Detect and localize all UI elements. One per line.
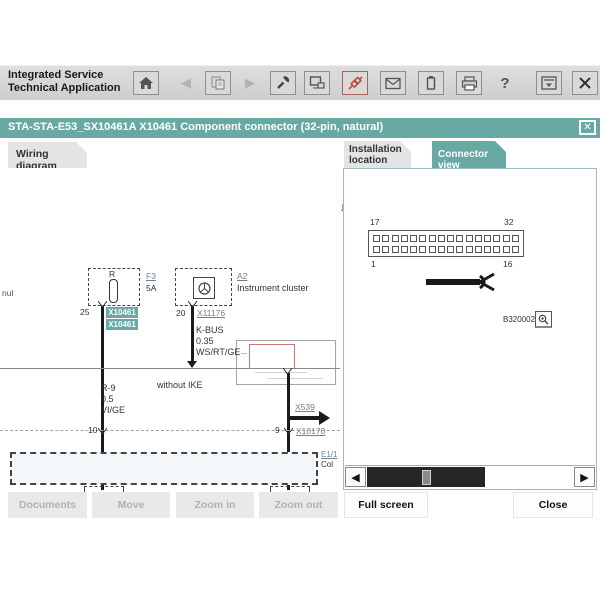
pin-square	[493, 246, 500, 253]
fuse-symbol-icon	[109, 279, 118, 303]
forward-button[interactable]: ▶	[240, 71, 260, 95]
print-button[interactable]	[456, 71, 482, 95]
vehicle-info-row: VIN: CAR: X'/E53/OFF-ROAD VEHICLE/X5 3.0…	[0, 100, 600, 117]
monitor-button[interactable]	[304, 71, 330, 95]
pin-square	[484, 246, 491, 253]
app-title-line1: Integrated Service	[8, 69, 120, 82]
minimize-window-button[interactable]	[536, 71, 562, 95]
pin-square	[438, 235, 445, 242]
pin-fork-icon	[284, 428, 293, 434]
overview-viewport-rect[interactable]	[249, 344, 295, 369]
dialog-close-button[interactable]: ✕	[579, 120, 596, 135]
link-x539[interactable]: X539	[295, 402, 315, 412]
close-button[interactable]: Close	[513, 492, 593, 518]
pin-square	[401, 246, 408, 253]
pin-square	[419, 235, 426, 242]
tab-installation-line1: Installation	[349, 144, 411, 155]
diagram-overview-navigator[interactable]	[236, 340, 336, 385]
fuse-label: R	[109, 269, 115, 279]
move-button[interactable]: Move	[92, 492, 170, 518]
connector-tag-group: X10461 X10461	[106, 307, 138, 331]
pin-number-9: 9	[275, 425, 280, 435]
pin-square	[456, 235, 463, 242]
home-button[interactable]	[133, 71, 159, 95]
pin-square	[392, 246, 399, 253]
app-title-line2: Technical Application	[8, 82, 120, 95]
pin-row-bottom	[373, 246, 519, 253]
full-screen-button[interactable]: Full screen	[344, 492, 428, 518]
pin-square	[466, 246, 473, 253]
connector-button-active[interactable]	[342, 71, 368, 95]
pin-square	[373, 246, 380, 253]
branch-arrow-right-icon	[319, 411, 330, 425]
note-without-ike: without IKE	[157, 380, 203, 390]
wire-size: 0.35	[196, 336, 214, 346]
vehicle-document-button[interactable]	[205, 71, 231, 95]
tab-installation-line2: location	[349, 155, 411, 166]
back-icon: ◀	[181, 75, 191, 91]
link-bottom-ref[interactable]: E1/1	[321, 450, 337, 459]
wire-color: WS/RT/GE	[196, 347, 240, 357]
mail-button[interactable]	[380, 71, 406, 95]
wiring-diagram-panel: nul R F3 5A 25 X10461 X10461 A2 Instrume…	[0, 168, 341, 490]
pin-square	[382, 235, 389, 242]
dialog-title: STA-STA-E53_SX10461A X10461 Component co…	[8, 121, 383, 133]
pin-square	[410, 246, 417, 253]
scroll-right-icon: ▶	[580, 471, 588, 484]
link-x11176[interactable]: X11176	[197, 308, 225, 318]
pin-label-top-left: 17	[370, 217, 379, 227]
pin-square	[373, 235, 380, 242]
edge-truncated-text: nul	[2, 288, 13, 298]
wire-arrowhead-down-icon	[187, 361, 197, 368]
close-app-button[interactable]	[572, 71, 598, 95]
close-icon	[578, 76, 592, 90]
connector-tag-x10461[interactable]: X10461	[106, 307, 138, 318]
pin-square	[401, 235, 408, 242]
pin-square	[429, 235, 436, 242]
dialog-title-bar: STA-STA-E53_SX10461A X10461 Component co…	[0, 118, 600, 138]
left-wire-size: 0.5	[101, 394, 114, 404]
scroll-right-button[interactable]: ▶	[574, 467, 595, 487]
pin-square	[512, 235, 519, 242]
forward-icon: ▶	[245, 75, 255, 91]
overview-line	[255, 372, 307, 373]
overview-line	[267, 378, 323, 379]
scrollbar-thumb[interactable]	[367, 467, 485, 487]
pin-label-bottom-right: 16	[503, 259, 512, 269]
overview-line	[241, 353, 247, 354]
connector-icon	[347, 75, 364, 91]
zoom-in-button[interactable]: Zoom in	[176, 492, 254, 518]
scrollbar-grip	[422, 470, 431, 485]
vehicle-document-icon	[210, 75, 226, 91]
pin-square	[475, 235, 482, 242]
instrument-cluster-icon	[193, 277, 215, 299]
photo-reference: B320002	[503, 315, 535, 324]
connector-tag-x10461[interactable]: X10461	[106, 319, 138, 330]
link-f3[interactable]: F3	[146, 271, 156, 281]
battery-button[interactable]	[418, 71, 444, 95]
pin-square	[456, 246, 463, 253]
pin-number-10: 10	[88, 425, 97, 435]
scroll-left-button[interactable]: ◀	[345, 467, 366, 487]
wire-kbus	[191, 306, 194, 362]
pin-label-bottom-left: 1	[371, 259, 376, 269]
scroll-left-icon: ◀	[351, 471, 359, 484]
pin-square	[503, 235, 510, 242]
workshop-button[interactable]	[270, 71, 296, 95]
pin-row-top	[373, 235, 519, 242]
left-wire-color: VI/GE	[101, 405, 125, 415]
documents-button[interactable]: Documents	[8, 492, 87, 518]
pin-label-top-right: 32	[504, 217, 513, 227]
connector-side-view	[426, 271, 501, 293]
pin-fork-icon	[98, 301, 107, 307]
branch-arrow-shaft	[289, 416, 319, 420]
pin-square	[512, 246, 519, 253]
pin-square	[429, 246, 436, 253]
cluster-name: Instrument cluster	[237, 283, 309, 293]
bottom-component-box[interactable]	[10, 452, 318, 485]
back-button[interactable]: ◀	[176, 71, 196, 95]
tab-installation-location[interactable]: Installation location	[344, 141, 411, 168]
home-icon	[138, 76, 154, 90]
connector-pin-grid	[368, 230, 524, 257]
print-icon	[461, 76, 478, 91]
pin-square	[447, 235, 454, 242]
link-x10170[interactable]: X10170	[296, 426, 325, 436]
link-a2[interactable]: A2	[237, 271, 247, 281]
fuse-component-box[interactable]: R	[88, 268, 140, 306]
pin-fork-icon	[98, 428, 107, 434]
battery-icon	[425, 75, 437, 91]
photo-zoom-button[interactable]	[535, 311, 552, 328]
pin-square	[438, 246, 445, 253]
mail-icon	[385, 77, 401, 90]
pin-square	[484, 235, 491, 242]
pin-square	[382, 246, 389, 253]
help-button[interactable]: ?	[494, 71, 516, 95]
pin-square	[475, 246, 482, 253]
tab-wiring-diagram[interactable]: Wiring diagram	[8, 142, 87, 168]
pin-number-25: 25	[80, 307, 89, 317]
zoom-out-button[interactable]: Zoom out	[259, 492, 338, 518]
pin-square	[503, 246, 510, 253]
pin-square	[419, 246, 426, 253]
pin-square	[447, 246, 454, 253]
help-icon: ?	[500, 75, 509, 92]
monitor-icon	[309, 75, 326, 91]
pin-square	[392, 235, 399, 242]
tab-connector-view[interactable]: Connector view	[432, 141, 506, 168]
wrench-icon	[275, 75, 291, 91]
pin-number-20: 20	[176, 308, 185, 318]
horizontal-scrollbar[interactable]: ◀ ▶	[345, 465, 595, 488]
magnifier-icon	[538, 314, 549, 325]
connector-view-panel: 17 32 1 16 B320002 ◀ ▶	[343, 168, 597, 490]
app-title: Integrated Service Technical Application	[8, 69, 120, 95]
bottom-component-name: Col	[321, 460, 333, 469]
ista-application-window: Integrated Service Technical Application…	[0, 0, 600, 600]
pin-square	[466, 235, 473, 242]
instrument-cluster-box[interactable]	[175, 268, 232, 306]
wire-name-kbus: K-BUS	[196, 325, 224, 335]
pin-fork-icon	[188, 301, 197, 307]
pin-square	[410, 235, 417, 242]
minimize-window-icon	[541, 76, 557, 90]
left-wire-name: R-9	[101, 383, 116, 393]
pin-square	[493, 235, 500, 242]
fuse-rating: 5A	[146, 283, 156, 293]
